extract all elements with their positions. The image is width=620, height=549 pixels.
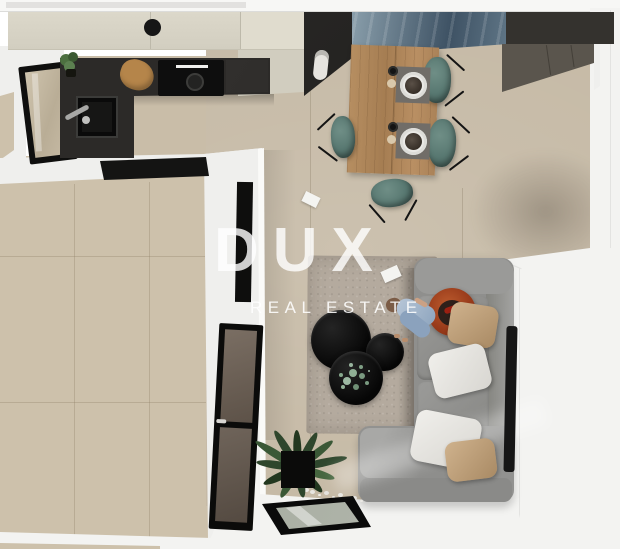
- pot: [186, 73, 204, 91]
- faucet-base: [82, 116, 90, 124]
- chaise-front: [360, 478, 512, 502]
- cabinet-section: [240, 12, 304, 49]
- tile-grout: [149, 182, 150, 544]
- placemat-setting: [395, 66, 430, 103]
- plate: [400, 128, 428, 156]
- watermark: DUX REAL ESTATE: [214, 220, 387, 282]
- door-pane: [220, 329, 257, 423]
- cup: [388, 66, 398, 76]
- tile-grout: [74, 184, 75, 544]
- pillow-tan: [446, 301, 500, 350]
- floor-shadow: [470, 150, 596, 262]
- coffee-table-plant: [329, 351, 383, 405]
- tile-grout: [0, 402, 208, 403]
- watermark-title: DUX: [214, 220, 387, 282]
- plate: [400, 72, 428, 100]
- person-foot: [394, 334, 400, 338]
- napkin: [387, 135, 396, 144]
- placemat-setting: [395, 122, 430, 159]
- wall-edge-shadow: [6, 2, 246, 8]
- plant-pot: [281, 451, 315, 488]
- tiled-floor-left-room: [0, 156, 214, 544]
- cabinet-divider: [240, 12, 241, 49]
- cooktop: [158, 60, 224, 96]
- door-pane: [215, 427, 252, 523]
- napkin: [387, 79, 396, 88]
- cooktop-display: [176, 65, 208, 68]
- pillow-tan: [444, 437, 499, 483]
- tile-grout: [0, 256, 205, 257]
- counter-plant: [58, 52, 82, 78]
- floorplan-render: DUX REAL ESTATE: [0, 0, 620, 549]
- sofa-armrest: [415, 258, 513, 294]
- watermark-subtitle: REAL ESTATE: [250, 298, 423, 318]
- cup: [388, 122, 398, 132]
- wall-shadow: [262, 150, 296, 440]
- wall-edge-line: [610, 10, 611, 248]
- person-foot: [402, 338, 408, 342]
- upper-cabinets: [8, 12, 304, 50]
- eucalyptus-plant: [349, 369, 357, 377]
- hood-vent-circle: [144, 19, 161, 36]
- door-handle: [216, 419, 226, 424]
